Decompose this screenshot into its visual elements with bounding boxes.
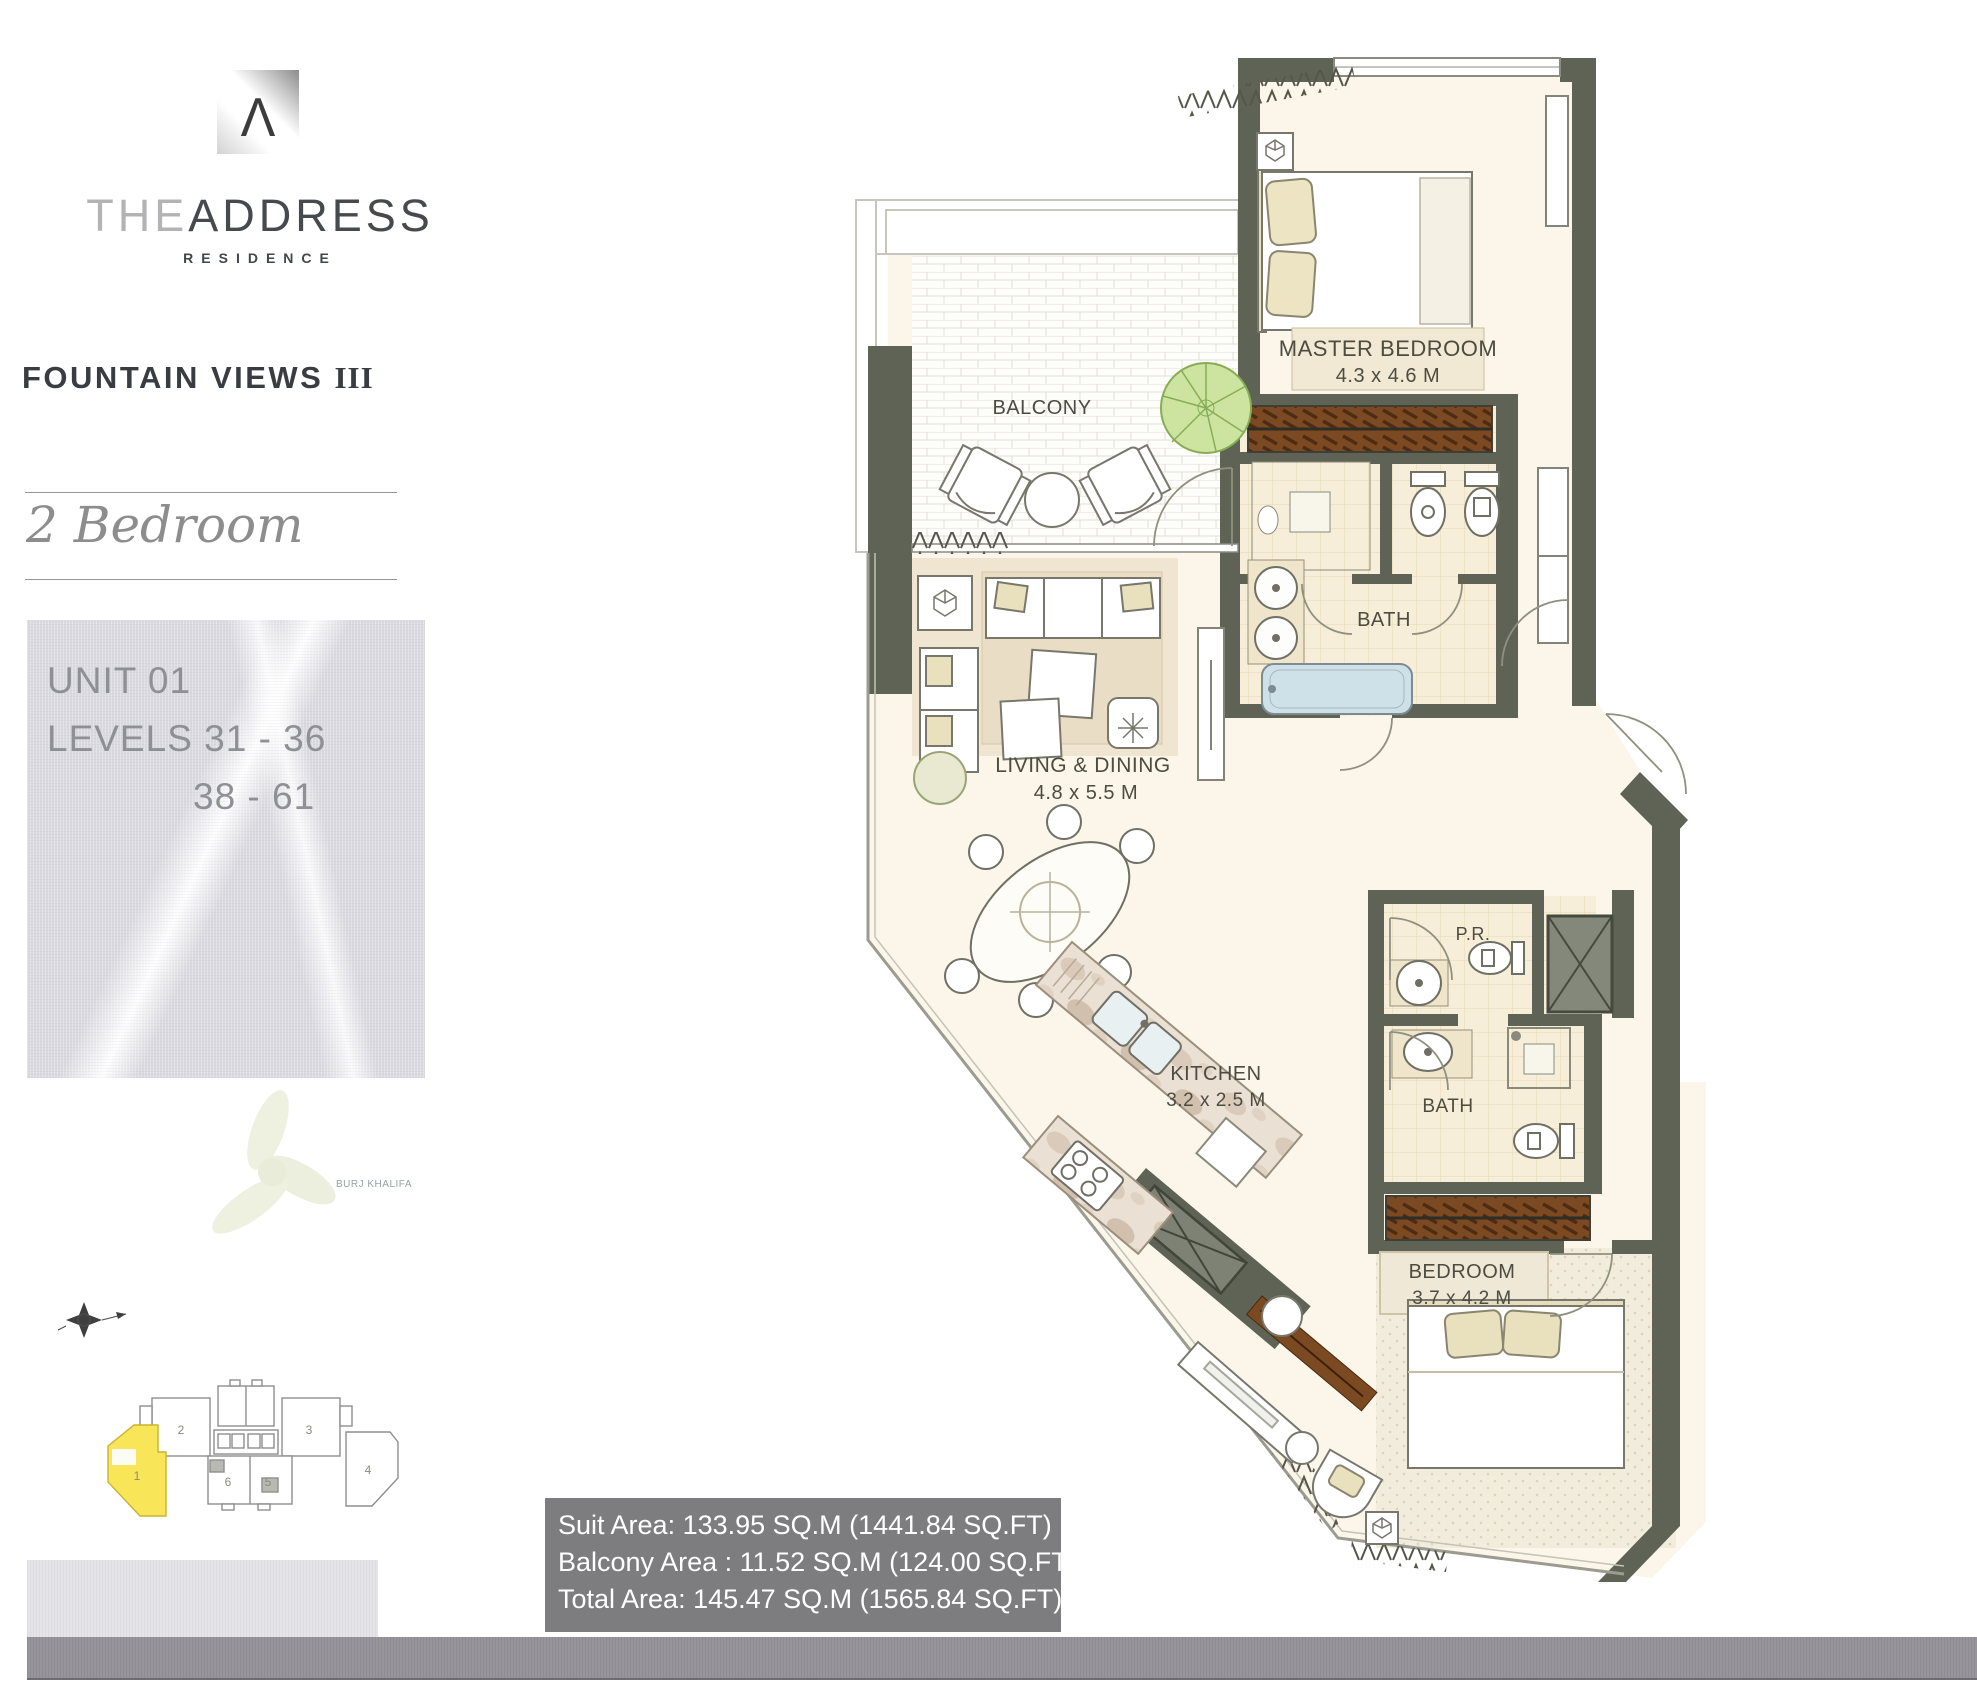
balcony-table bbox=[1025, 473, 1079, 527]
wall-pr-shaft bbox=[1532, 890, 1544, 1018]
wall-master-left bbox=[1238, 58, 1260, 406]
pr-toilet bbox=[1469, 942, 1524, 974]
shaft-core bbox=[1548, 916, 1612, 1012]
wall-bath2-bottom bbox=[1368, 1182, 1602, 1194]
burj-khalifa-footprint: BURJ KHALIFA bbox=[205, 1085, 412, 1243]
label-kitchen: KITCHEN bbox=[1170, 1063, 1261, 1085]
label-master-bedroom-dims: 4.3 x 4.6 M bbox=[1336, 365, 1440, 387]
wall-bedroom-top-b bbox=[1612, 1240, 1656, 1254]
label-living-dining-dims: 4.8 x 5.5 M bbox=[1034, 782, 1138, 804]
wall-bath-part-c bbox=[1458, 574, 1498, 584]
label-pr: P.R. bbox=[1456, 924, 1491, 944]
wall-master-bottom bbox=[1238, 394, 1518, 406]
label-living-dining: LIVING & DINING bbox=[995, 754, 1171, 777]
bath2-toilet bbox=[1514, 1124, 1574, 1158]
shower-tray bbox=[1290, 492, 1330, 532]
floor-plan-canvas: MASTER BEDROOM 4.3 x 4.6 M BALCONY BATH … bbox=[0, 0, 1977, 1700]
wall-pr-top bbox=[1384, 890, 1540, 904]
wall-shaft-right bbox=[1612, 890, 1634, 1018]
key-plan: 1 2 3 4 5 6 bbox=[108, 1380, 398, 1516]
label-kitchen-dims: 3.2 x 2.5 M bbox=[1166, 1090, 1266, 1111]
label-bedroom-dims: 3.7 x 4.2 M bbox=[1412, 1288, 1512, 1309]
compass-icon bbox=[58, 1302, 126, 1338]
bath2-shower-tray bbox=[1524, 1044, 1554, 1074]
keyplan-unit4-block bbox=[346, 1432, 398, 1506]
wall-bath-part-b bbox=[1352, 574, 1412, 584]
toilet-master bbox=[1465, 472, 1499, 536]
label-bath-master: BATH bbox=[1357, 609, 1411, 631]
label-burj-khalifa: BURJ KHALIFA bbox=[336, 1179, 412, 1190]
side-round-table bbox=[1286, 1432, 1318, 1464]
label-master-bedroom: MASTER BEDROOM bbox=[1279, 336, 1497, 361]
wall-bath2-right bbox=[1584, 1014, 1602, 1194]
keyplan-num-4: 4 bbox=[365, 1463, 372, 1477]
wall-right-lower bbox=[1652, 826, 1680, 1526]
master-bed bbox=[1258, 170, 1472, 332]
scanned-floorplan-page: { "brand": { "logo_symbol": "Λ", "name_p… bbox=[0, 0, 1977, 1700]
keyplan-num-2: 2 bbox=[178, 1423, 185, 1437]
wall-bath-right bbox=[1496, 404, 1518, 716]
tree-icon bbox=[1161, 363, 1251, 453]
toilet-small bbox=[1258, 506, 1278, 534]
coffee-table-2 bbox=[1001, 699, 1062, 760]
master-window bbox=[1334, 58, 1560, 76]
bidet bbox=[1411, 472, 1445, 536]
bathtub bbox=[1262, 664, 1412, 714]
wall-stack-left bbox=[1368, 890, 1384, 1250]
label-bedroom: BEDROOM bbox=[1409, 1261, 1516, 1283]
label-balcony: BALCONY bbox=[992, 397, 1091, 419]
wall-right-upper bbox=[1572, 58, 1596, 706]
keyplan-num-5: 5 bbox=[265, 1475, 272, 1489]
master-dresser bbox=[1546, 96, 1568, 226]
keyplan-num-1: 1 bbox=[134, 1469, 141, 1483]
keyplan-num-6: 6 bbox=[225, 1475, 232, 1489]
wall-bath-divider bbox=[1380, 464, 1392, 580]
bedroom-cube-lamp bbox=[1366, 1512, 1398, 1544]
plant-pot bbox=[914, 752, 966, 804]
nightstand-cube-lamp bbox=[1257, 133, 1293, 170]
label-bath2: BATH bbox=[1422, 1096, 1473, 1117]
wall-pr-bottom-a bbox=[1368, 1014, 1458, 1026]
keyplan-num-3: 3 bbox=[306, 1423, 313, 1437]
